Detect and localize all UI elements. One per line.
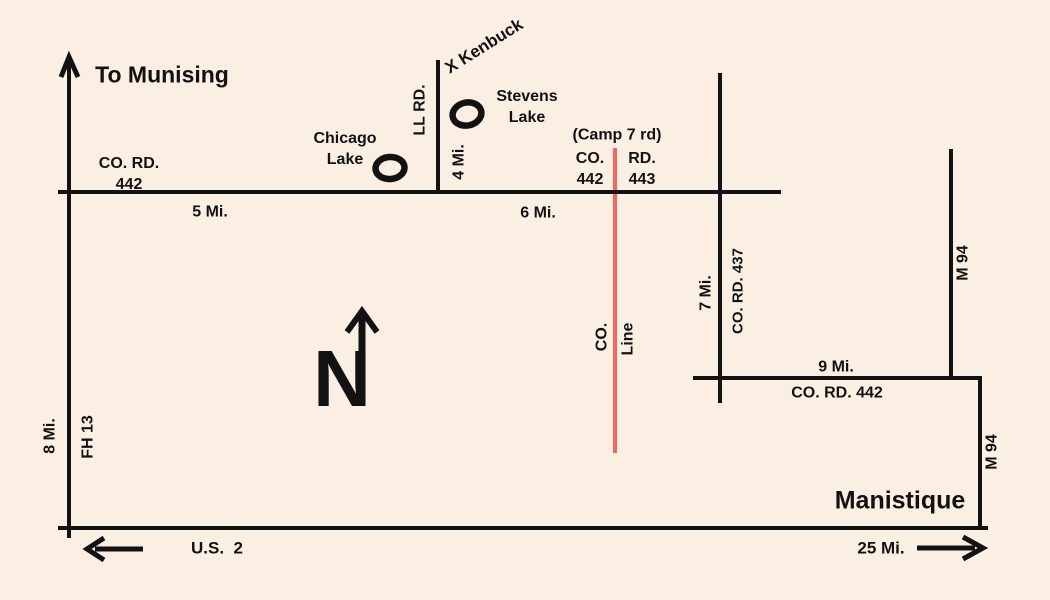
camp-7-rd-label: (Camp 7 rd) — [573, 125, 662, 146]
co-rd-442-west-label: CO. RD. 442 — [99, 153, 159, 195]
five-mi-label: 5 Mi. — [192, 202, 228, 223]
stevens-lake-label: Stevens Lake — [496, 86, 557, 128]
sketch-map: To Munising CO. RD. 442 5 Mi. Chicago La… — [0, 0, 1050, 600]
us2-label: U.S. 2 — [191, 538, 243, 559]
m94-north-label: M 94 — [953, 245, 974, 281]
rd-443-line2: 443 — [628, 169, 656, 190]
co-442-label: CO. 442 — [576, 148, 604, 190]
co-442-line2: 442 — [576, 169, 604, 190]
chicago-lake-label: Chicago Lake — [313, 128, 376, 170]
co-rd-442-west-line2: 442 — [99, 174, 159, 195]
stevens-lake-line2: Lake — [496, 107, 557, 128]
nine-mi-label: 9 Mi. — [818, 357, 854, 378]
seven-mi-label: 7 Mi. — [696, 275, 717, 311]
rd-443-label: RD. 443 — [628, 148, 656, 190]
four-mi-label: 4 Mi. — [449, 144, 470, 180]
stevens-lake-line1: Stevens — [496, 86, 557, 107]
fh-13-label: FH 13 — [78, 415, 99, 459]
us2-east-arrow-icon — [917, 537, 983, 559]
to-munising-label: To Munising — [95, 65, 229, 86]
us2-west-arrow-icon — [87, 538, 143, 560]
manistique-label: Manistique — [835, 491, 966, 512]
compass-n-label: N — [313, 339, 371, 419]
ll-rd-label: LL RD. — [410, 84, 431, 135]
chicago-lake-line1: Chicago — [313, 128, 376, 149]
six-mi-label: 6 Mi. — [520, 203, 556, 224]
co-rd-442-east-label: CO. RD. 442 — [791, 383, 883, 404]
chicago-lake-line2: Lake — [313, 149, 376, 170]
m94-south-label: M 94 — [982, 434, 1003, 470]
co-rd-442-west-line1: CO. RD. — [99, 153, 159, 174]
rd-443-line1: RD. — [628, 148, 656, 169]
stevens-lake-icon — [450, 100, 483, 129]
county-line-label-line: Line — [618, 323, 639, 356]
twenty-five-mi-label: 25 Mi. — [857, 538, 904, 559]
co-rd-437-label: CO. RD. 437 — [728, 248, 749, 334]
chicago-lake-icon — [375, 156, 405, 180]
co-442-line1: CO. — [576, 148, 604, 169]
eight-mi-label: 8 Mi. — [40, 418, 61, 454]
county-line-label-co: CO. — [592, 323, 613, 351]
